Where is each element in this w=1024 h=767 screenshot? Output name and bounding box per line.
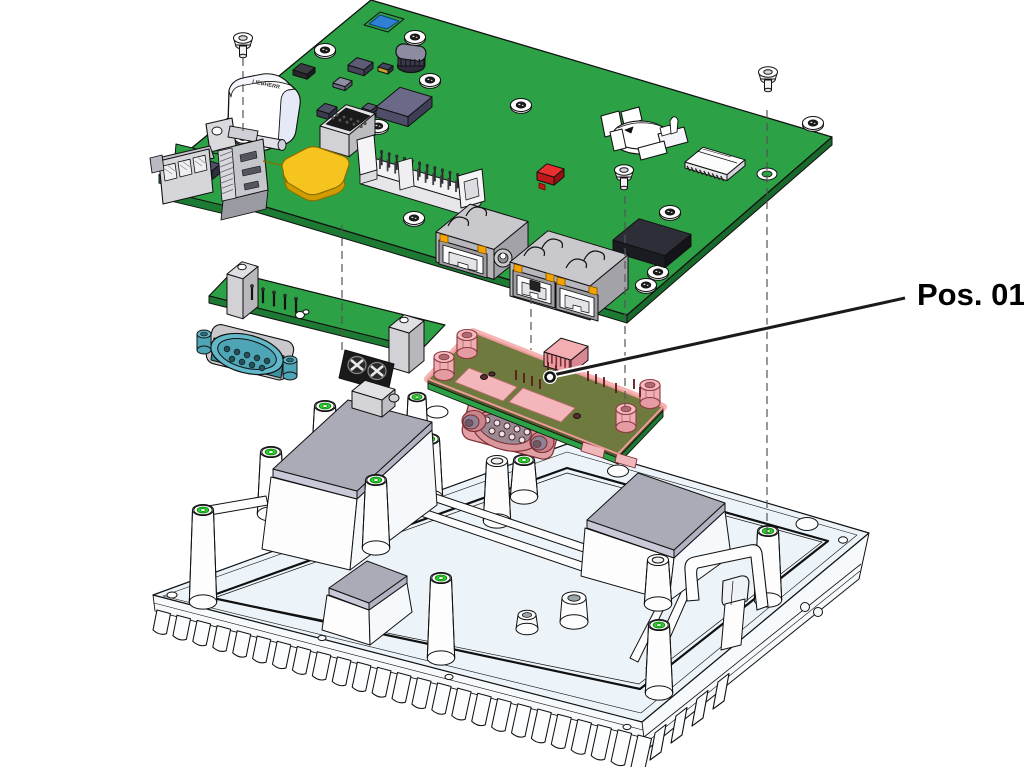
svg-text:Pos. 01: Pos. 01 xyxy=(917,277,1024,312)
